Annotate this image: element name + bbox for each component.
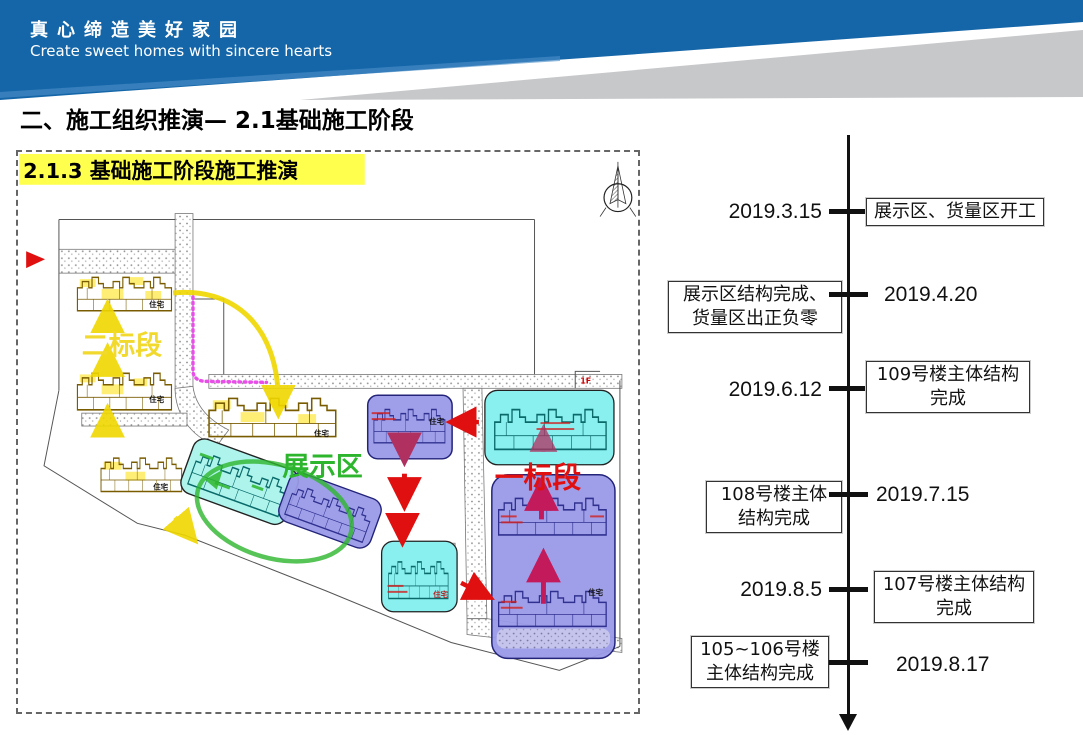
plan-heading: 2.1.3 基础施工阶段施工推演	[19, 154, 365, 185]
milestone-text: 105~106号楼	[699, 638, 821, 662]
milestone-text: 109号楼主体结构	[874, 363, 1022, 387]
milestone-text: 展示区、货量区开工	[874, 200, 1036, 224]
timeline-milestone: 108号楼主体 结构完成	[706, 481, 842, 533]
timeline-tick	[829, 292, 868, 297]
site-plan-drawing: 2.1.3 基础施工阶段施工推演	[18, 152, 638, 712]
zone-building-bottom	[382, 541, 457, 611]
svg-text:住宅: 住宅	[314, 428, 329, 438]
milestone-text: 完成	[882, 597, 1026, 621]
timeline-milestone: 105~106号楼 主体结构完成	[691, 636, 829, 688]
timeline-milestone: 107号楼主体结构 完成	[874, 571, 1034, 623]
timeline-date: 2019.8.5	[692, 578, 822, 602]
timeline-milestone: 109号楼主体结构 完成	[866, 361, 1030, 413]
timeline-date: 2019.6.12	[692, 378, 822, 402]
building-outline	[77, 373, 171, 410]
timeline-date: 2019.8.17	[896, 653, 989, 677]
milestone-text: 主体结构完成	[699, 662, 821, 686]
timeline-tick	[829, 587, 868, 592]
zone-section-one	[492, 475, 615, 659]
road-left-vertical	[175, 214, 193, 391]
header-slogan-cn: 真心缔造美好家园	[30, 16, 246, 42]
timeline-tick	[829, 660, 868, 665]
svg-text:2.1.3 基础施工阶段施工推演: 2.1.3 基础施工阶段施工推演	[23, 159, 298, 183]
milestone-text: 展示区结构完成、	[676, 283, 834, 307]
milestone-text: 108号楼主体	[714, 483, 834, 507]
entrance-arrow-icon	[26, 251, 45, 268]
road-entrance	[59, 249, 178, 273]
timeline-tick	[829, 492, 868, 497]
label-exhibition-area: 展示区	[282, 452, 362, 483]
zone-building-109	[485, 390, 614, 464]
timeline-tick	[829, 209, 868, 214]
timeline-date: 2019.7.15	[876, 483, 969, 507]
svg-text:住宅: 住宅	[149, 299, 164, 309]
svg-text:住宅: 住宅	[433, 589, 448, 599]
label-section-two: 二标段	[82, 331, 163, 362]
road-lower-left	[82, 413, 187, 426]
svg-text:住宅: 住宅	[588, 587, 603, 597]
svg-text:住宅: 住宅	[429, 416, 444, 426]
slide: 真心缔造美好家园 Create sweet homes with sincere…	[0, 0, 1083, 750]
timeline-date: 2019.3.15	[692, 200, 822, 224]
page-title: 二、施工组织推演— 2.1基础施工阶段	[20, 101, 414, 135]
milestone-text: 结构完成	[714, 507, 834, 531]
label-1f: 1F	[580, 376, 591, 385]
header-slogan-en: Create sweet homes with sincere hearts	[30, 42, 332, 60]
site-plan-panel: 2.1.3 基础施工阶段施工推演	[16, 150, 640, 714]
label-section-one: 一标段	[495, 461, 582, 495]
svg-text:住宅: 住宅	[153, 482, 168, 492]
milestone-text: 货量区出正负零	[676, 307, 834, 331]
timeline-axis	[847, 135, 850, 717]
timeline-tick	[829, 386, 868, 391]
timeline-milestone: 展示区结构完成、 货量区出正负零	[668, 281, 842, 333]
timeline-arrow-icon	[839, 714, 857, 731]
road-middle-horizontal	[209, 374, 622, 388]
timeline-milestone: 展示区、货量区开工	[866, 198, 1044, 226]
hatched-band	[497, 629, 610, 649]
timeline-date: 2019.4.20	[884, 283, 977, 307]
magenta-dotted-path	[193, 297, 266, 382]
svg-text:住宅: 住宅	[149, 394, 164, 404]
compass-icon	[600, 162, 636, 217]
milestone-text: 完成	[874, 387, 1022, 411]
milestone-text: 107号楼主体结构	[882, 573, 1026, 597]
zone-building-108	[368, 395, 452, 459]
